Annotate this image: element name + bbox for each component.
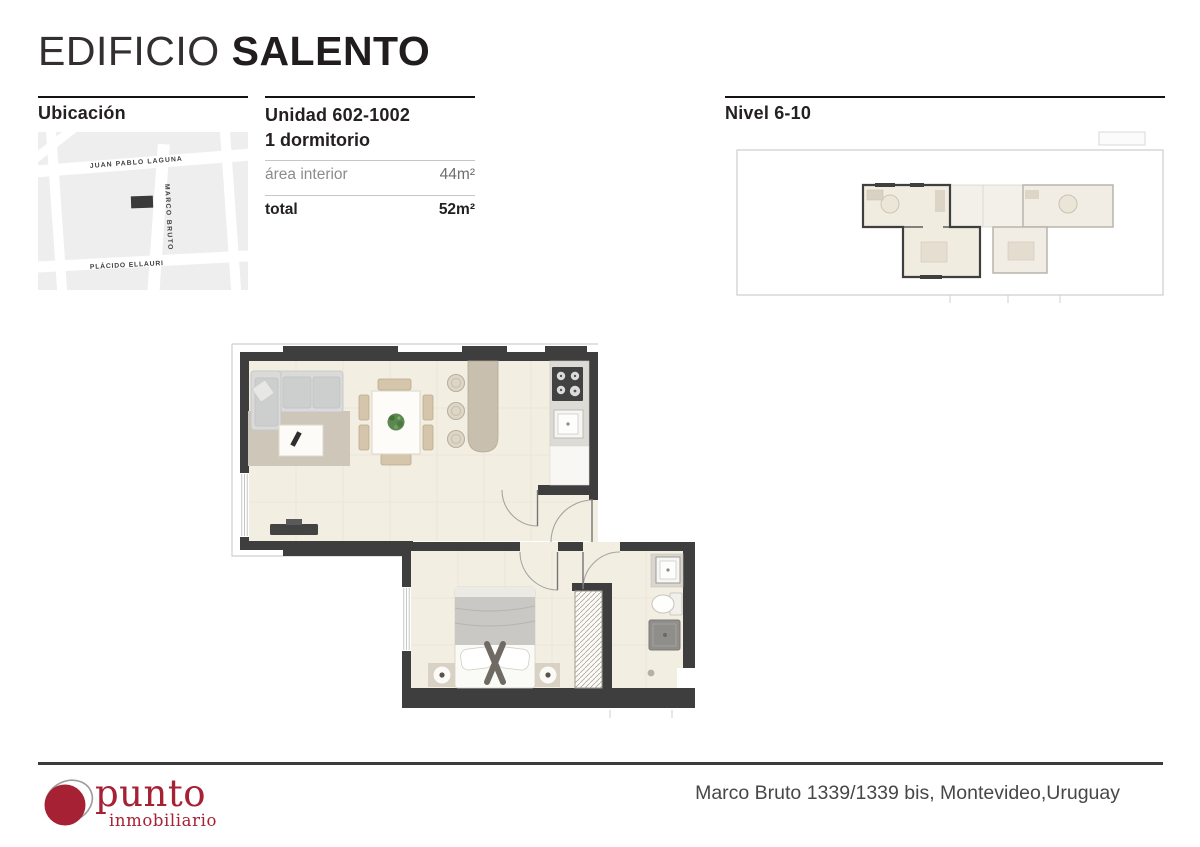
- kitchen: [550, 361, 589, 485]
- dimension-ticks: [610, 710, 672, 718]
- total-row: total 52m²: [265, 196, 475, 223]
- brand-name: punto: [95, 772, 206, 815]
- title-bold: SALENTO: [232, 28, 431, 74]
- living-window: [240, 473, 249, 537]
- bar-stools: [448, 375, 465, 448]
- brand-circle-icon: [36, 774, 100, 838]
- brand-logo: punto inmobiliario: [36, 772, 296, 842]
- area-value: 44m²: [440, 166, 475, 184]
- wall-niche: [677, 668, 695, 688]
- footer-address: Marco Bruto 1339/1339 bis, Montevideo,Ur…: [695, 782, 1120, 805]
- building-marker: [131, 196, 153, 209]
- bed: [455, 587, 535, 688]
- level-balcony: [1099, 132, 1145, 145]
- closet: [575, 591, 602, 688]
- cooktop: [552, 367, 583, 401]
- location-heading: Ubicación: [38, 103, 248, 124]
- page-title: EDIFICIO SALENTO: [38, 28, 430, 75]
- level-section: Nivel 6-10: [725, 96, 1165, 310]
- location-map: JUAN PABLO LAGUNA MARCO BRUTO PLÁCIDO EL…: [38, 132, 248, 290]
- level-heading: Nivel 6-10: [725, 103, 1165, 124]
- shower: [649, 620, 680, 650]
- total-value: 52m²: [439, 201, 475, 219]
- area-row: área interior 44m²: [265, 161, 475, 188]
- footer-rule: [38, 762, 1163, 765]
- kitchen-island: [448, 361, 499, 452]
- level-ticks: [950, 295, 1060, 303]
- area-label: área interior: [265, 166, 348, 184]
- level-plan: [725, 130, 1165, 310]
- location-section: Ubicación JUAN PABLO LAGUNA MARCO BRUTO …: [38, 96, 248, 290]
- coffee-table: [279, 425, 323, 456]
- bedroom-window: [402, 587, 411, 651]
- unit-subtitle: 1 dormitorio: [265, 128, 475, 153]
- floor-plan: [220, 338, 702, 720]
- table-plant: [388, 414, 405, 431]
- title-light: EDIFICIO: [38, 28, 220, 74]
- brand-subname: inmobiliario: [109, 811, 217, 830]
- floor-drain: [648, 670, 655, 677]
- total-label: total: [265, 201, 298, 219]
- toilet: [652, 593, 682, 615]
- unit-title: Unidad 602-1002: [265, 103, 475, 128]
- level-core: [950, 185, 1023, 227]
- unit-section: Unidad 602-1002 1 dormitorio área interi…: [265, 96, 475, 223]
- flyer-page: EDIFICIO SALENTO Ubicación JUAN PABLO LA…: [0, 0, 1200, 847]
